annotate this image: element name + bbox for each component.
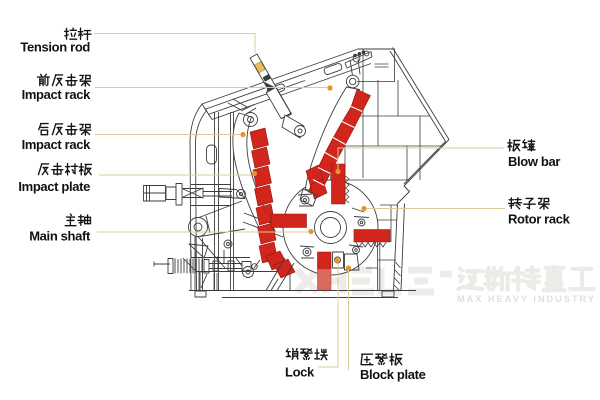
svg-text:Impact rack: Impact rack (22, 137, 92, 152)
svg-text:Block plate: Block plate (360, 367, 426, 382)
svg-text:Tension rod: Tension rod (20, 40, 90, 55)
svg-text:Rotor rack: Rotor rack (508, 212, 571, 227)
svg-text:Impact plate: Impact plate (18, 179, 90, 194)
svg-text:MAX HEAVY INDUSTRY: MAX HEAVY INDUSTRY (457, 294, 596, 304)
svg-text:Blow bar: Blow bar (508, 154, 560, 169)
svg-text:Main shaft: Main shaft (29, 229, 91, 244)
svg-text:Impact rack: Impact rack (22, 87, 92, 102)
svg-text:Lock: Lock (285, 365, 315, 380)
